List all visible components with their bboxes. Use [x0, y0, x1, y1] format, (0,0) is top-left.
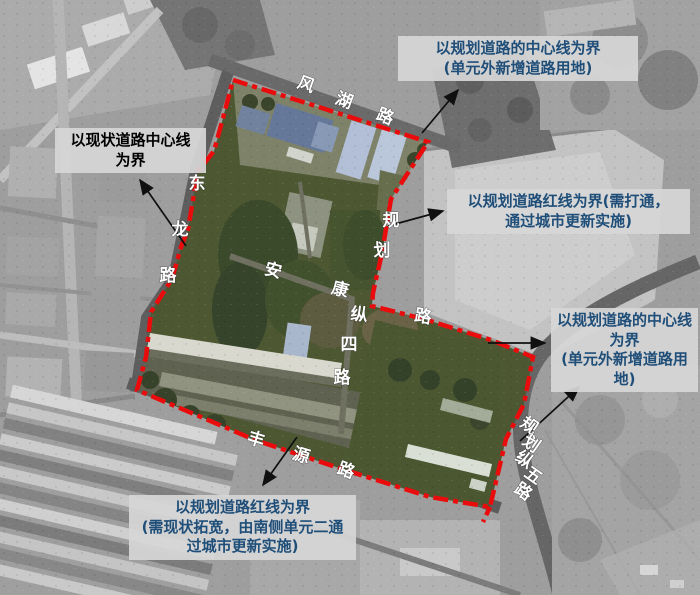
- callout-line: 地): [555, 370, 694, 390]
- callout-line: 以规划道路红线为界: [133, 498, 352, 518]
- callout-line: 以规划道路的中心线为界: [402, 39, 634, 59]
- road-char: 龙: [171, 219, 189, 240]
- road-char: 纵: [350, 303, 369, 325]
- callout-planned-road-centerline-top: 以规划道路的中心线为界 (单元外新增道路用地): [398, 36, 638, 81]
- callout-line: 为界: [59, 151, 202, 171]
- callout-line: 以规划道路红线为界(需打通，: [451, 192, 686, 212]
- road-char: 四: [341, 335, 358, 355]
- planning-map-figure: 风 湖 路 东 龙 路 规 划 路 安 康 纵 四 路 丰 源 路 规 划: [0, 0, 700, 595]
- callout-line: (单元外新增道路用: [555, 350, 694, 370]
- callout-line: 通过城市更新实施): [451, 212, 686, 232]
- road-char: 东: [189, 173, 206, 194]
- callout-planned-road-redline-open: 以规划道路红线为界(需打通， 通过城市更新实施): [447, 189, 690, 234]
- road-char: 路: [334, 367, 352, 388]
- road-char: 路: [160, 265, 178, 286]
- callout-planned-road-redline-widen: 以规划道路红线为界 (需现状拓宽，由南侧单元二通 过城市更新实施): [129, 495, 356, 560]
- road-char: 规: [383, 211, 400, 231]
- callout-existing-road-centerline: 以现状道路中心线 为界: [55, 128, 206, 173]
- callout-line: 以规划道路的中心线: [555, 311, 694, 331]
- callout-line: (单元外新增道路用地): [402, 59, 634, 79]
- callout-line: (需现状拓宽，由南侧单元二通: [133, 518, 352, 538]
- callout-line: 以现状道路中心线: [59, 131, 202, 151]
- callout-line: 为界: [555, 331, 694, 351]
- road-char: 划: [374, 240, 391, 261]
- callout-planned-road-centerline-right: 以规划道路的中心线 为界 (单元外新增道路用 地): [551, 308, 698, 392]
- callout-line: 过城市更新实施): [133, 537, 352, 557]
